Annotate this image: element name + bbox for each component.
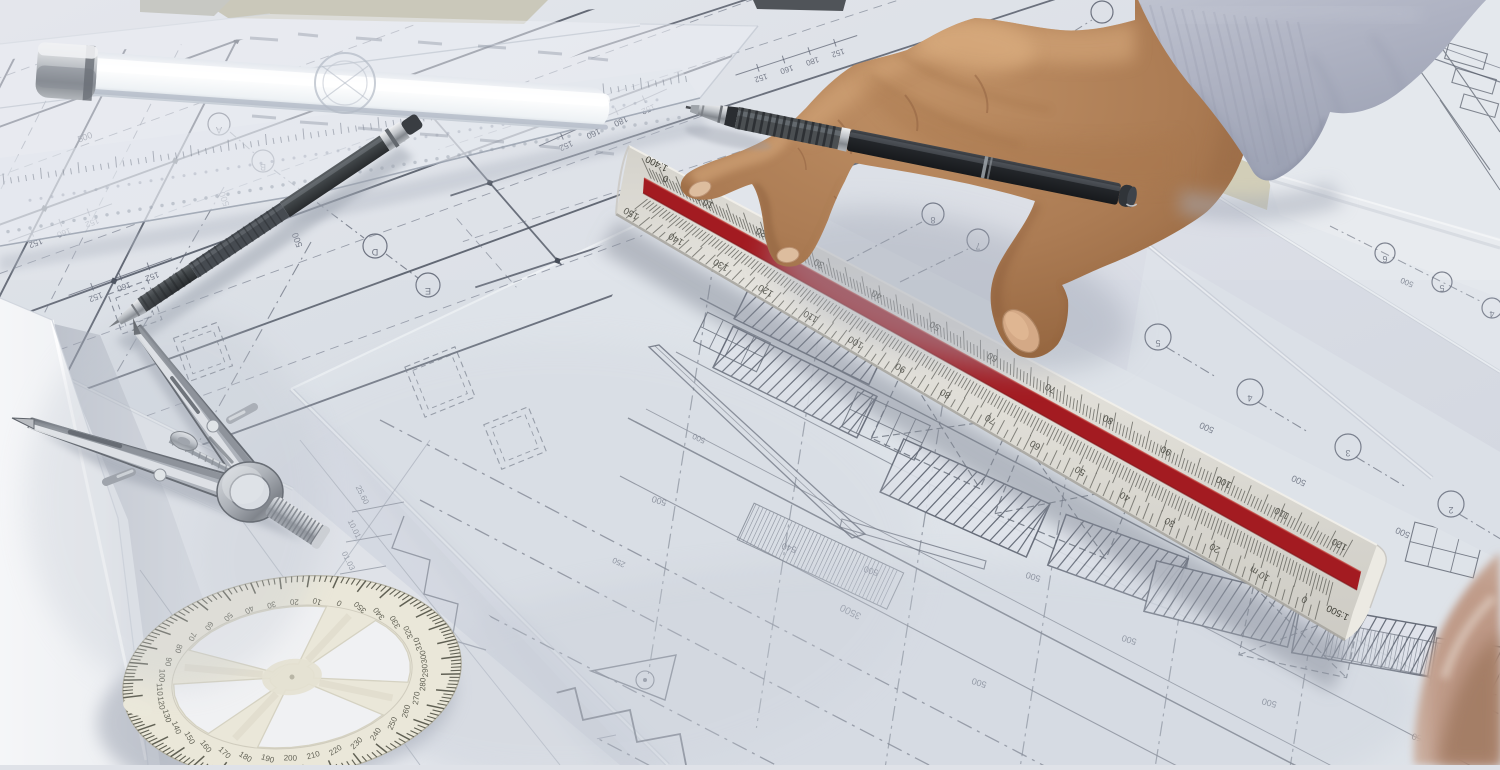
svg-text:280: 280 bbox=[418, 677, 427, 691]
svg-text:200: 200 bbox=[284, 753, 298, 762]
svg-text:290: 290 bbox=[420, 663, 430, 677]
